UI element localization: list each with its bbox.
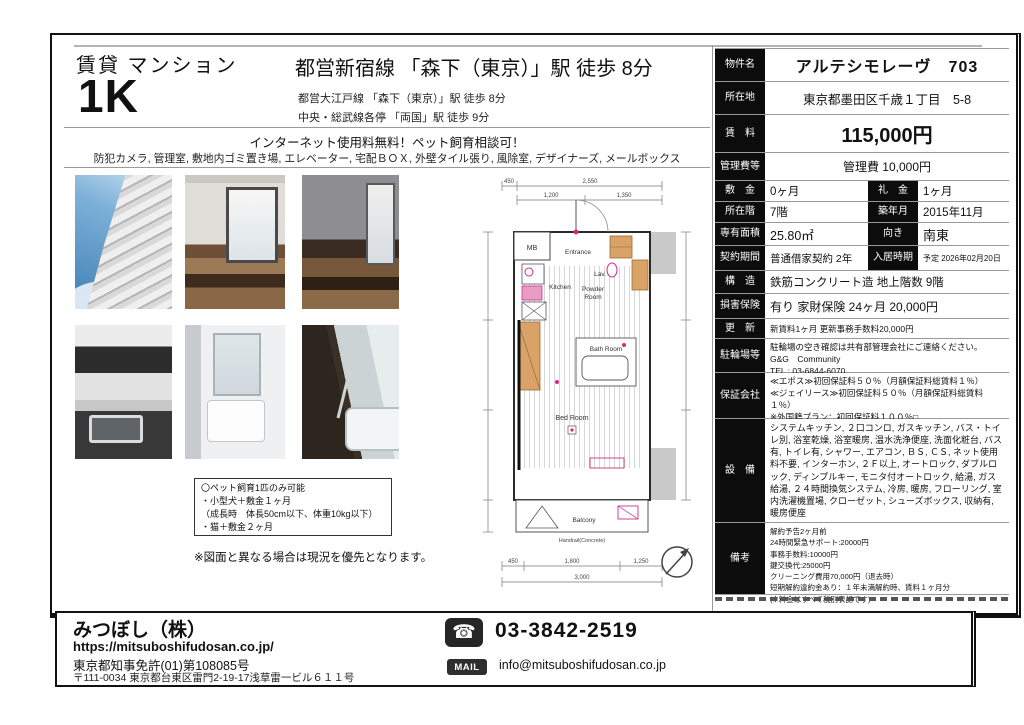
row-notes: 備考 解約予告2ヶ月前 24時間緊急サポート:20000円 事務手数料:1000… (715, 523, 1009, 595)
pet-policy-box: 〇ペット飼育1匹のみ可能 ・小型犬＋敷金１ヶ月 （成長時 体長50cm以下、体重… (194, 478, 392, 536)
dim-3000: 3,000 (574, 575, 590, 581)
address-label: 所在地 (715, 82, 765, 114)
notes-value: 解約予告2ヶ月前 24時間緊急サポート:20000円 事務手数料:10000円 … (765, 523, 1009, 594)
photo-bathroom (302, 325, 399, 459)
deposit-value: 0ヶ月 (765, 181, 868, 201)
handrail-label: Handrail(Concrete) (559, 538, 606, 544)
built-label: 築年月 (868, 202, 918, 222)
bathtub (582, 356, 628, 380)
entrance-door-arc (576, 200, 608, 232)
bicycle-label: 駐輪場等 (715, 339, 765, 372)
contract-label: 契約期間 (715, 246, 765, 270)
dim-1250: 1,250 (633, 559, 649, 565)
phone-icon: ☎ (445, 618, 483, 647)
fee-label: 管理費等 (715, 153, 765, 180)
row-management-fee: 管理費等 管理費 10,000円 (715, 153, 1009, 181)
row-area-facing: 専有面積 25.80㎡ 向き 南東 (715, 223, 1009, 246)
row-property-name: 物件名 アルテシモレーヴ 703 (715, 49, 1009, 82)
agency-name: みつぼし（株） (73, 615, 206, 642)
floorplan-disclaimer: ※図面と異なる場合は現況を優先となります。 (194, 549, 432, 565)
washer-cabinet (632, 260, 648, 290)
facing-label: 向き (868, 223, 918, 245)
movein-value: 予定 2026年02月20日 (918, 246, 1009, 270)
clipped-update-line (715, 597, 1009, 601)
structure-value: 鉄筋コンクリート造 地上階数 9階 (765, 271, 1009, 293)
photo-washbasin (185, 325, 285, 459)
row-contract-movein: 契約期間 普通借家契約 2年 入居時期 予定 2026年02月20日 (715, 246, 1009, 271)
guarantor-label: 保証会社 (715, 373, 765, 418)
key-money-label: 礼 金 (868, 181, 918, 201)
dim-1800: 1,800 (564, 559, 580, 565)
main-station-access: 都営新宿線 「森下（東京）」駅 徒歩 8分 (295, 52, 653, 81)
mb-label: MB (527, 245, 538, 252)
floor-value: 7階 (765, 202, 868, 222)
dim-450-top: 450 (504, 179, 515, 185)
rent-value: 115,000円 (765, 115, 1009, 152)
dim-450-bottom: 450 (508, 559, 519, 565)
lav-label: Lav. (594, 271, 606, 278)
top-rule (74, 45, 982, 47)
bed-room-label: Bed Room (555, 415, 588, 422)
stove (522, 286, 542, 300)
photo-kitchen (75, 325, 172, 459)
divider (64, 167, 710, 168)
powder-room-label-1: Powder (582, 286, 605, 293)
dim-1350: 1,350 (616, 193, 632, 199)
fee-value: 管理費 10,000円 (765, 153, 1009, 180)
area-label: 専有面積 (715, 223, 765, 245)
address-value: 東京都墨田区千歳１丁目 5-8 (765, 82, 1009, 114)
entrance-label: Entrance (565, 249, 591, 256)
notes-label: 備考 (715, 523, 765, 594)
property-name-value: アルテシモレーヴ 703 (765, 49, 1009, 81)
bicycle-value: 駐輪場の空き確認は共有部管理会社にご連絡ください。 G&G Community … (765, 339, 1009, 372)
photo-building-exterior (75, 175, 172, 309)
balcony-label: Balcony (572, 517, 596, 524)
bath-room-label: Bath Room (590, 346, 623, 353)
dim-2550: 2,550 (582, 179, 598, 185)
contract-value: 普通借家契約 2年 (765, 246, 868, 270)
agency-footer: みつぼし（株） https://mitsuboshifudosan.co.jp/… (55, 611, 976, 687)
toilet (607, 263, 617, 277)
built-value: 2015年11月 (918, 202, 1009, 222)
rental-flyer-page: 賃貸 マンション 1K 都営新宿線 「森下（東京）」駅 徒歩 8分 都営大江戸線… (0, 0, 1024, 725)
main-sheet: 賃貸 マンション 1K 都営新宿線 「森下（東京）」駅 徒歩 8分 都営大江戸線… (50, 33, 1021, 618)
insurance-value: 有り 家財保険 24ヶ月 20,000円 (765, 294, 1009, 318)
bath-fixture-dot (622, 343, 626, 347)
key-money-value: 1ヶ月 (918, 181, 1009, 201)
guarantor-value: ≪エポス≫初回保証料５０％（月額保証料総賃料１％） ≪ジェイリース≫初回保証料５… (765, 373, 1009, 418)
deposit-label: 敷 金 (715, 181, 765, 201)
row-equipment: 設 備 システムキッチン, ２口コンロ, ガスキッチン, バス・トイレ別, 浴室… (715, 419, 1009, 523)
dim-1200: 1,200 (543, 193, 559, 199)
layout-type: 1K (78, 69, 139, 123)
floor-plan: 450 2,550 1,200 1,350 (472, 170, 714, 613)
agency-email: info@mitsuboshifudosan.co.jp (499, 658, 666, 672)
agency-phone: 03-3842-2519 (495, 619, 638, 643)
divider (64, 127, 710, 128)
equipment-label: 設 備 (715, 419, 765, 522)
row-bicycle: 駐輪場等 駐輪場の空き確認は共有部管理会社にご連絡ください。 G&G Commu… (715, 339, 1009, 373)
compass-icon (662, 547, 692, 577)
floor-label: 所在階 (715, 202, 765, 222)
structure-label: 構 造 (715, 271, 765, 293)
agency-url: https://mitsuboshifudosan.co.jp/ (73, 639, 274, 654)
powder-room-label-2: Room (584, 294, 601, 301)
row-structure: 構 造 鉄筋コンクリート造 地上階数 9階 (715, 271, 1009, 294)
facing-value: 南東 (918, 223, 1009, 245)
row-guarantor: 保証会社 ≪エポス≫初回保証料５０％（月額保証料総賃料１％） ≪ジェイリース≫初… (715, 373, 1009, 419)
mail-icon: MAIL (447, 659, 487, 675)
agency-address: 〒111-0034 東京都台東区雷門2-19-17浅草雷一ビル６１１号 (73, 670, 354, 685)
property-name-label: 物件名 (715, 49, 765, 81)
row-renewal: 更 新 新賃料1ヶ月 更新事務手数料20,000円 (715, 319, 1009, 339)
insurance-label: 損害保険 (715, 294, 765, 318)
door-hinge-dot (574, 230, 579, 235)
row-address: 所在地 東京都墨田区千歳１丁目 5-8 (715, 82, 1009, 115)
wall-block (650, 232, 676, 274)
row-floor-built: 所在階 7階 築年月 2015年11月 (715, 202, 1009, 223)
feature-list: 防犯カメラ, 管理室, 敷地内ゴミ置き場, エレベーター, 宅配ＢＯＸ, 外壁タ… (64, 150, 710, 166)
photo-living-room-accent-wall (302, 175, 399, 309)
catch-copy: インターネット使用料無料！ペット飼育相談可！ (64, 132, 710, 151)
row-insurance: 損害保険 有り 家財保険 24ヶ月 20,000円 (715, 294, 1009, 319)
renewal-value: 新賃料1ヶ月 更新事務手数料20,000円 (765, 319, 1009, 338)
wall-block (650, 448, 676, 500)
equipment-value: システムキッチン, ２口コンロ, ガスキッチン, バス・トイレ別, 浴室乾燥, … (765, 419, 1009, 522)
sub-station-access: 都営大江戸線 「森下（東京）」駅 徒歩 8分 中央・総武線各停 「両国」駅 徒歩… (298, 90, 506, 127)
spec-table: 物件名 アルテシモレーヴ 703 所在地 東京都墨田区千歳１丁目 5-8 賃 料… (715, 48, 1009, 595)
renewal-label: 更 新 (715, 319, 765, 338)
row-deposit-keymoney: 敷 金 0ヶ月 礼 金 1ヶ月 (715, 181, 1009, 202)
photo-living-room-window (185, 175, 285, 309)
area-value: 25.80㎡ (765, 223, 868, 245)
row-rent: 賃 料 115,000円 (715, 115, 1009, 153)
kitchen-label: Kitchen (549, 284, 571, 291)
movein-label: 入居時期 (868, 246, 918, 270)
rent-label: 賃 料 (715, 115, 765, 152)
